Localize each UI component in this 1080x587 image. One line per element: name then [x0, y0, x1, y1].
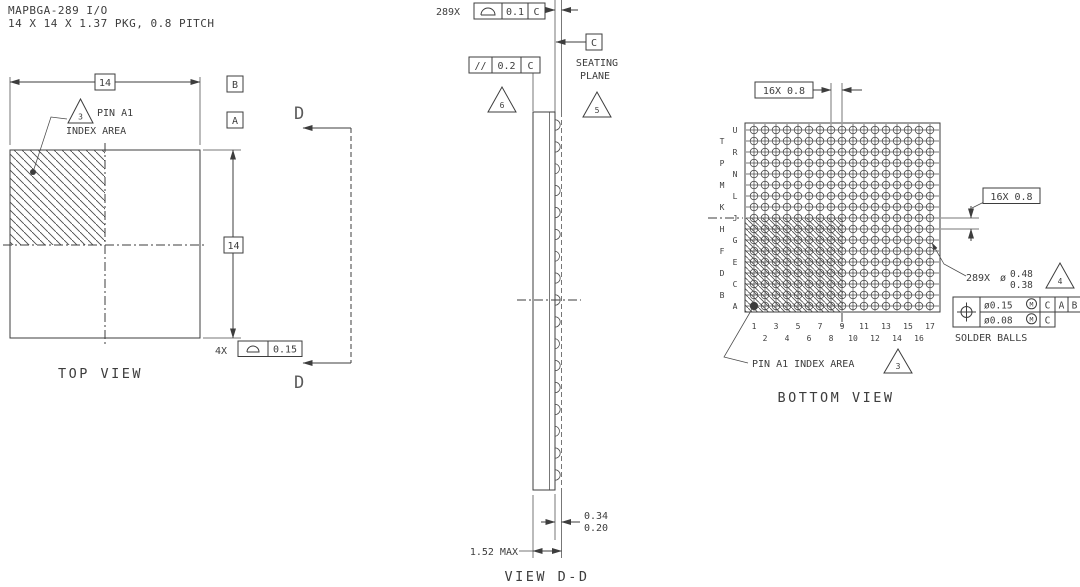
row-label: A: [733, 302, 738, 311]
pin-a1-index-hatch: [10, 150, 105, 245]
row-label: R: [733, 148, 738, 157]
row-label: G: [733, 236, 738, 245]
drawing-canvas: MAPBGA-289 I/O 14 X 14 X 1.37 PKG, 0.8 P…: [0, 0, 1080, 587]
standoff-max: 0.34: [584, 511, 608, 522]
parallelism-fcf: // 0.2 C 6: [469, 57, 540, 112]
col-label: 4: [785, 334, 790, 343]
dim-height-value: 14: [227, 241, 239, 252]
side-ball: [555, 470, 560, 480]
row-label: E: [733, 258, 738, 267]
row-label: C: [733, 280, 738, 289]
solder-ball-fcf: ø0.15 M C A B ø0.08 M C SOLDER BALLS: [953, 297, 1080, 344]
pitch-dim-right: 16X 0.8: [941, 188, 1040, 241]
corner-profile-callout: 4X 0.15: [215, 341, 302, 357]
col-label: 13: [881, 322, 891, 331]
pin-a1-label: PIN A1 INDEX AREA: [752, 359, 854, 370]
side-ball: [555, 339, 559, 349]
seating-plane-label-1: SEATING: [576, 58, 618, 69]
side-ball: [555, 229, 560, 239]
side-ball: [555, 207, 560, 217]
row-label: B: [720, 291, 725, 300]
side-ball: [555, 273, 560, 283]
fcf-datum-1a: C: [1045, 301, 1051, 312]
col-label: 7: [818, 322, 823, 331]
top-view-title: TOP VIEW: [58, 366, 143, 382]
ball-diameter-spec: 289X ø 0.48 0.38 4: [932, 243, 1074, 291]
col-label: 10: [848, 334, 858, 343]
row-label: K: [720, 203, 725, 212]
fcf-mod-1: M: [1030, 300, 1034, 308]
flag-6-number: 6: [500, 101, 505, 110]
col-label: 16: [914, 334, 924, 343]
col-label: 2: [763, 334, 768, 343]
pin-a1-label-2: INDEX AREA: [66, 126, 126, 137]
pin-a1-ball-marker: [750, 302, 758, 310]
col-label: 12: [870, 334, 880, 343]
ball-profile-datum: C: [533, 7, 539, 18]
ball-profile-tol: 0.1: [506, 7, 524, 18]
ball-dia-min: 0.38: [1010, 280, 1033, 291]
bottom-view-title: BOTTOM VIEW: [778, 390, 895, 406]
parallelism-tol: 0.2: [497, 61, 515, 72]
col-label: 17: [925, 322, 935, 331]
pitch-dim-top: 16X 0.8: [755, 82, 862, 122]
side-ball: [555, 448, 560, 458]
datum-b-label: B: [232, 80, 238, 91]
flag-4-number: 4: [1058, 277, 1063, 286]
overall-height: 1.52 MAX: [470, 547, 518, 558]
pitch-top-value: 16X 0.8: [763, 86, 805, 97]
row-label: H: [720, 225, 725, 234]
col-label: 1: [752, 322, 757, 331]
fcf-datum-1c: B: [1072, 301, 1078, 312]
dim-width-value: 14: [99, 78, 111, 89]
col-label: 8: [829, 334, 834, 343]
col-label: 14: [892, 334, 902, 343]
bottom-view: 16X 0.8 UTRPNMLKJHGFEDCBA123456789101112…: [708, 82, 1080, 406]
ball-dia-max: 0.48: [1010, 269, 1033, 280]
col-label: 15: [903, 322, 913, 331]
standoff-min: 0.20: [584, 523, 608, 534]
row-label: F: [720, 247, 725, 256]
datum-c-label: C: [591, 38, 597, 49]
fcf-datum-2a: C: [1045, 316, 1051, 327]
package-size-spec: 14 X 14 X 1.37 PKG, 0.8 PITCH: [8, 17, 215, 30]
overall-height-dim: 1.52 MAX: [470, 547, 562, 558]
parallelism-datum: C: [527, 61, 533, 72]
col-label: 6: [807, 334, 812, 343]
side-ball: [555, 251, 559, 261]
pin-flag-number: 3: [78, 113, 83, 122]
row-label: P: [720, 159, 725, 168]
row-label: L: [733, 192, 738, 201]
pin-flag-number: 3: [896, 362, 901, 371]
top-view: 14 B A 14 4X 0.15 3 PIN A1 I: [3, 74, 302, 382]
row-label: N: [733, 170, 738, 179]
row-label: M: [720, 181, 725, 190]
side-ball: [555, 360, 560, 370]
ball-count: 289X: [966, 273, 990, 284]
pin-a1-callout-bottom: PIN A1 INDEX AREA 3: [724, 309, 912, 373]
fcf-datum-1b: A: [1059, 301, 1065, 312]
section-letter-top: D: [294, 104, 304, 124]
parallelism-icon: //: [474, 61, 486, 72]
section-letter-bottom: D: [294, 373, 304, 393]
side-ball: [555, 164, 559, 174]
side-view: 289X 0.1 C C SEATING PLANE 5: [436, 0, 618, 585]
col-label: 5: [796, 322, 801, 331]
ball-profile-fcf: 289X 0.1 C: [436, 3, 578, 19]
datum-c-callout: C SEATING PLANE 5: [556, 34, 618, 117]
ball-profile-count: 289X: [436, 7, 460, 18]
title-block: MAPBGA-289 I/O 14 X 14 X 1.37 PKG, 0.8 P…: [8, 4, 215, 30]
corner-tol-value: 0.15: [273, 345, 297, 356]
row-label: T: [720, 137, 725, 146]
pin-a1-label-1: PIN A1: [97, 108, 133, 119]
pitch-right-value: 16X 0.8: [990, 192, 1032, 203]
side-ball: [555, 404, 560, 414]
flag-5-number: 5: [595, 106, 600, 115]
dim-height: 14: [203, 150, 243, 338]
solder-balls-label: SOLDER BALLS: [955, 333, 1027, 344]
col-label: 3: [774, 322, 779, 331]
fcf-mod-2: M: [1030, 315, 1034, 323]
section-cut-line: D D: [294, 104, 351, 393]
datum-a-label: A: [232, 116, 238, 127]
fcf-tol-1: ø0.15: [984, 301, 1013, 312]
package-name: MAPBGA-289 I/O: [8, 4, 108, 17]
leader-dot: [30, 169, 36, 175]
side-ball: [555, 185, 560, 195]
side-ball: [555, 142, 560, 152]
col-label: 9: [840, 322, 845, 331]
diameter-icon: ø: [1000, 273, 1006, 284]
corner-count-label: 4X: [215, 346, 227, 357]
side-ball: [555, 382, 560, 392]
side-ball: [555, 317, 560, 327]
row-label: U: [733, 126, 738, 135]
package-body-outline: [533, 112, 555, 490]
side-ball: [555, 426, 559, 436]
row-label: D: [720, 269, 725, 278]
engineering-drawing-sheet: MAPBGA-289 I/O 14 X 14 X 1.37 PKG, 0.8 P…: [0, 0, 1080, 587]
side-view-title: VIEW D-D: [504, 569, 589, 585]
side-ball: [555, 120, 560, 130]
fcf-tol-2: ø0.08: [984, 316, 1013, 327]
standoff-dim: 0.34 0.20: [533, 494, 608, 558]
seating-plane-label-2: PLANE: [580, 71, 610, 82]
col-label: 11: [859, 322, 869, 331]
